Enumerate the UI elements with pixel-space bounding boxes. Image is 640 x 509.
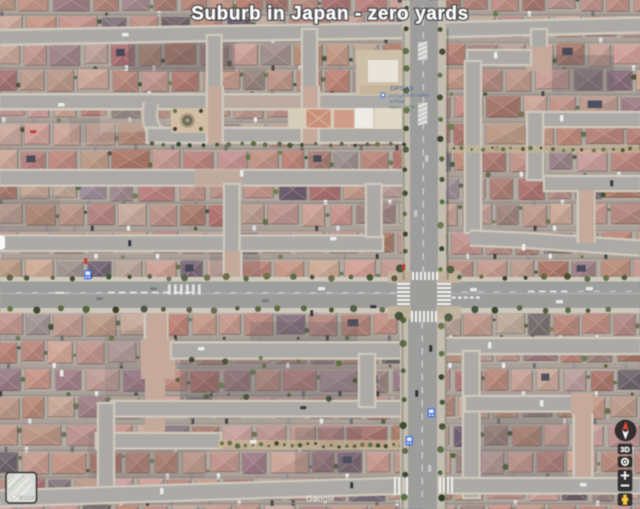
svg-text:DPS 15: DPS 15	[390, 86, 414, 93]
svg-text:school: school	[389, 99, 404, 105]
svg-text:3D: 3D	[620, 445, 630, 454]
svg-text:Open - 5PM: Open - 5PM	[389, 105, 415, 111]
svg-text:Suburb in Japan - zero yards: Suburb in Japan - zero yards	[191, 4, 469, 25]
svg-text:Camera: Camera	[19, 495, 36, 500]
svg-text:Google: Google	[306, 494, 335, 504]
